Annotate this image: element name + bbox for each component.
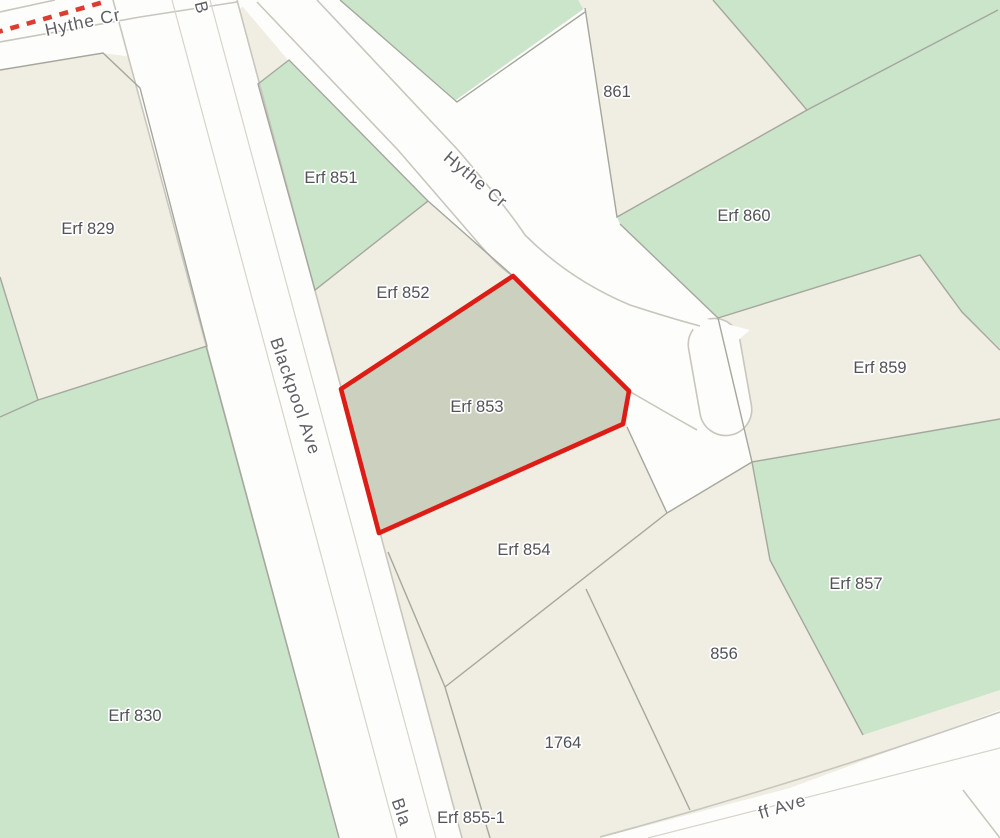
map-canvas[interactable]: Hythe Cr Hythe Cr Blackpool Ave B Bla ff… (0, 0, 1000, 838)
parcel-label-erf-853: Erf 853 (450, 398, 503, 416)
parcel-label-erf-857: Erf 857 (829, 575, 882, 593)
parcel-label-856: 856 (710, 645, 738, 663)
parcel-label-erf-859: Erf 859 (853, 359, 906, 377)
parcel-label-erf-854: Erf 854 (497, 541, 550, 559)
parcel-label-erf-852: Erf 852 (376, 284, 429, 302)
parcel-label-erf-860: Erf 860 (717, 207, 770, 225)
parcel-label-1764: 1764 (545, 734, 582, 752)
parcel-label-erf-851: Erf 851 (304, 169, 357, 187)
parcel-label-861: 861 (603, 83, 631, 101)
parcel-label-erf-830: Erf 830 (108, 707, 161, 725)
parcel-label-erf-829: Erf 829 (61, 220, 114, 238)
parcel-label-erf-855-1: Erf 855-1 (437, 809, 505, 827)
